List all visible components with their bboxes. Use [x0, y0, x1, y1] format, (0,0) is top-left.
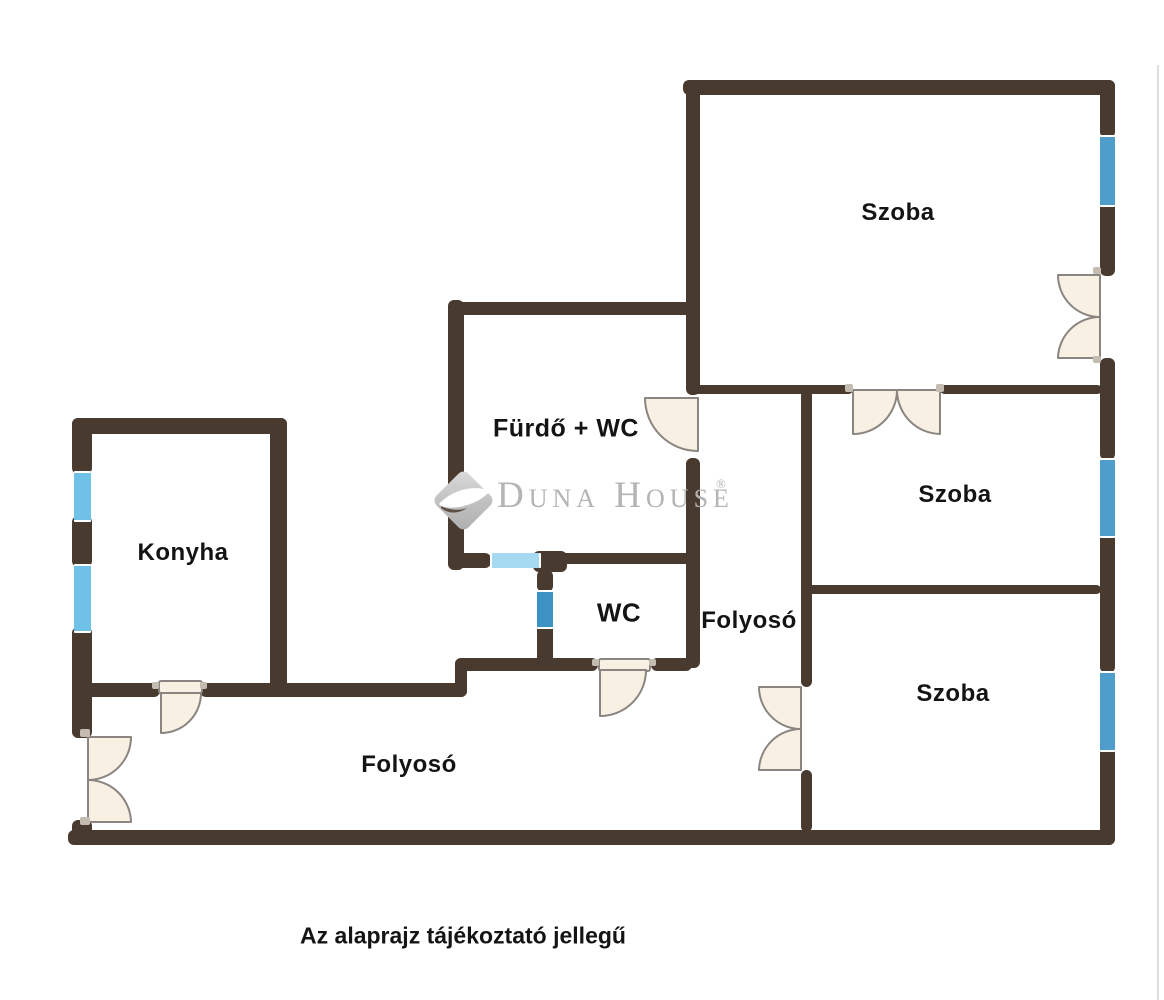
duna-house-logo-text: Duna House [497, 476, 734, 516]
floor-plan: Duna House ® Szoba Fürdő + WC Konyha Szo… [0, 0, 1164, 1000]
room-label-konyha: Konyha [137, 539, 228, 567]
disclaimer-caption: Az alaprajz tájékoztató jellegű [300, 923, 626, 950]
hinge-tick [936, 384, 944, 392]
double-door-szoba-bottom-icon [759, 687, 801, 770]
room-label-szoba-top: Szoba [861, 199, 934, 227]
hinge-tick [845, 384, 853, 392]
door-furdo-icon [645, 398, 698, 451]
door-konyha-leaf [159, 681, 202, 693]
door-konyha-icon [161, 693, 201, 733]
room-label-wc: WC [597, 598, 641, 629]
page-edge-line [1157, 65, 1159, 1000]
door-wc-icon [600, 670, 646, 716]
room-label-folyoso-main: Folyosó [361, 751, 457, 779]
hinge-tick [1093, 356, 1101, 363]
room-label-szoba-middle: Szoba [918, 481, 991, 509]
hinge-tick [592, 659, 599, 666]
registered-trademark-icon: ® [716, 476, 726, 492]
double-door-szoba-top-icon [1058, 275, 1100, 358]
room-label-furdo-wc: Fürdő + WC [493, 415, 639, 444]
hinge-tick [1093, 267, 1101, 274]
hinge-tick [80, 729, 90, 737]
duna-house-logo: Duna House ® [427, 462, 737, 538]
double-door-entrance-icon [88, 737, 131, 822]
hinge-tick [152, 682, 159, 689]
room-label-szoba-bottom: Szoba [916, 680, 989, 708]
room-label-folyoso-middle: Folyosó [701, 607, 797, 635]
hinge-tick [80, 817, 90, 825]
double-door-szoba-middle-icon [853, 390, 940, 434]
hinge-tick [649, 659, 656, 666]
hinge-tick [200, 682, 207, 689]
duna-house-diamond-icon [427, 462, 501, 538]
